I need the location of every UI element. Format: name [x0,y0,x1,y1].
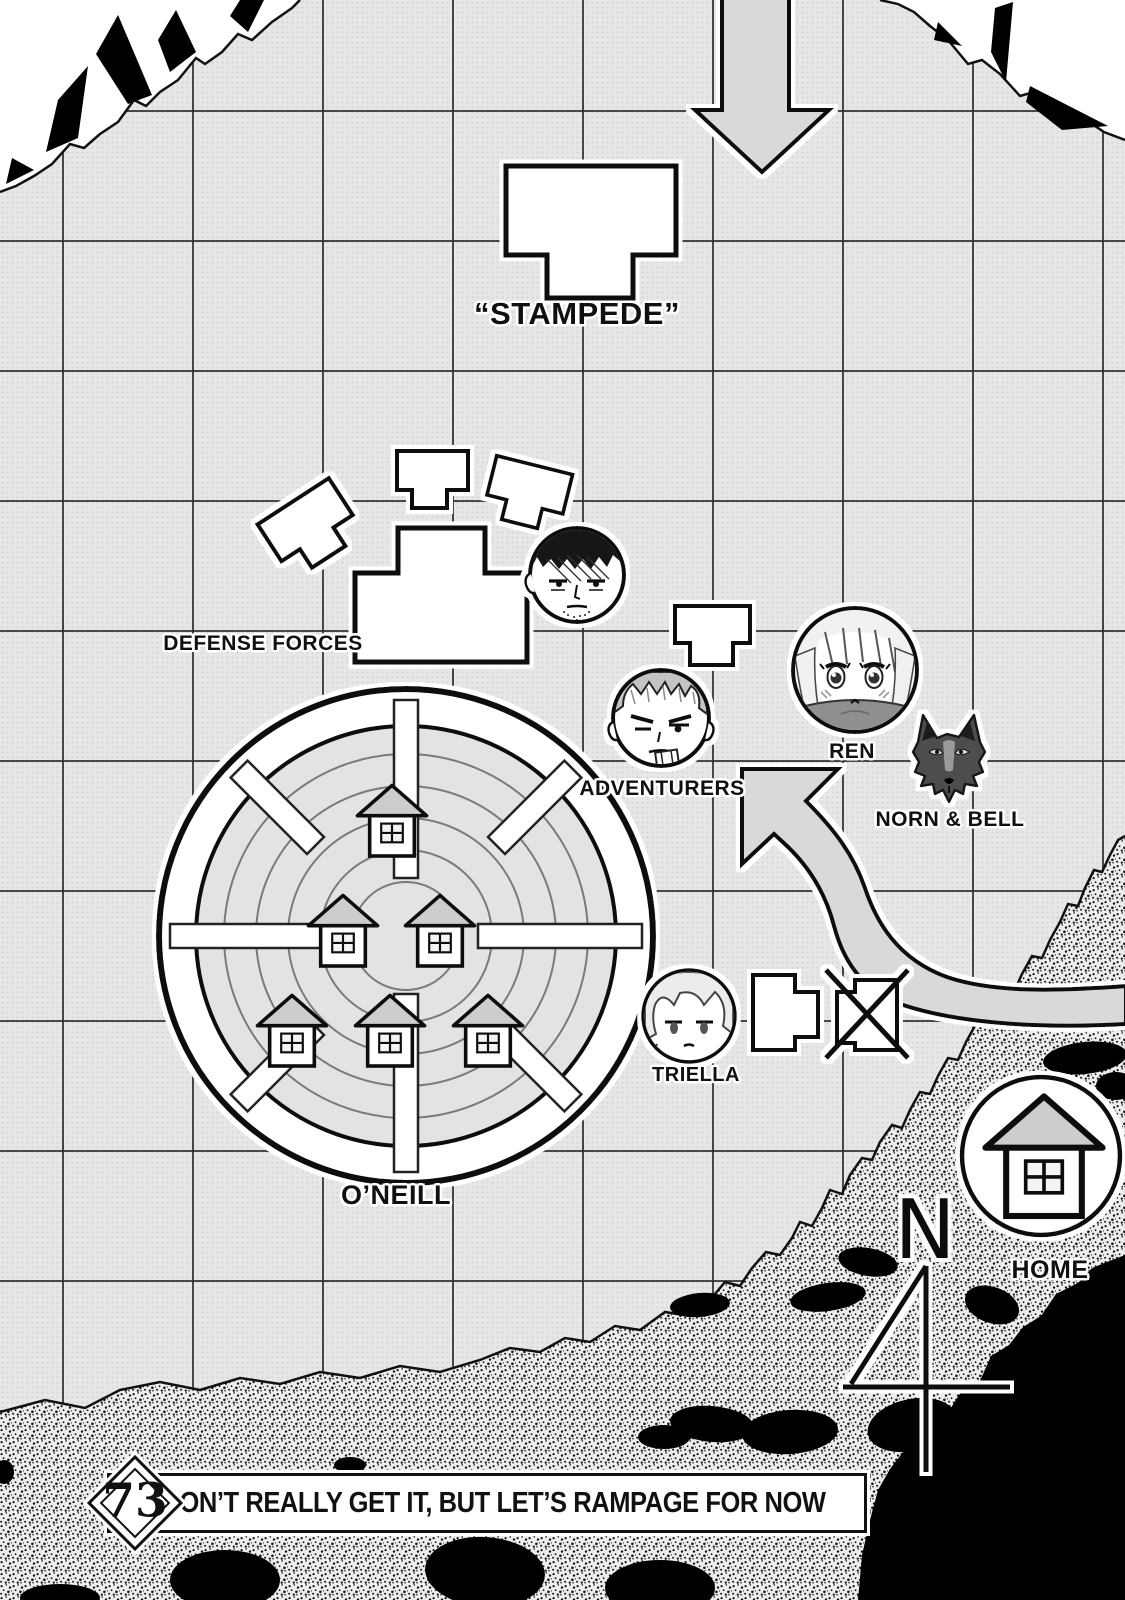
chapter-title-bar: I DON’T REALLY GET IT, BUT LET’S RAMPAGE… [107,1473,867,1533]
wolf-head-icon [913,715,985,802]
triella-portrait [641,970,735,1062]
label-adventurers: ADVENTURERS [579,777,744,801]
compass-north-letter: N [894,1183,955,1278]
unit-block-shape [753,975,818,1050]
commander-portrait [526,528,624,622]
label-norn-bell: NORN & BELL [876,808,1025,832]
label-ren: REN [829,740,875,764]
walled-city-oneill [159,689,653,1183]
ren-portrait [793,608,917,732]
label-stampede: “STAMPEDE” [474,296,680,332]
label-oneill: O’NEILL [341,1180,451,1211]
label-triella: TRIELLA [652,1064,740,1087]
mountains-top-left [0,0,300,192]
chapter-number: 73 [102,1473,167,1528]
adventurer-portrait [609,670,714,766]
crossed-out-block-shape [826,970,908,1058]
map-artwork: N [0,0,1125,1600]
home-icon [962,1077,1120,1235]
chapter-title: I DON’T REALLY GET IT, BUT LET’S RAMPAGE… [148,1487,825,1520]
mountains-top-right [880,0,1125,140]
label-home: HOME [1012,1256,1089,1285]
big-arrow-down [695,0,829,172]
monster-block-shape [506,166,676,298]
manga-map-page: N [0,0,1125,1600]
label-defense-forces: DEFENSE FORCES [163,632,363,656]
